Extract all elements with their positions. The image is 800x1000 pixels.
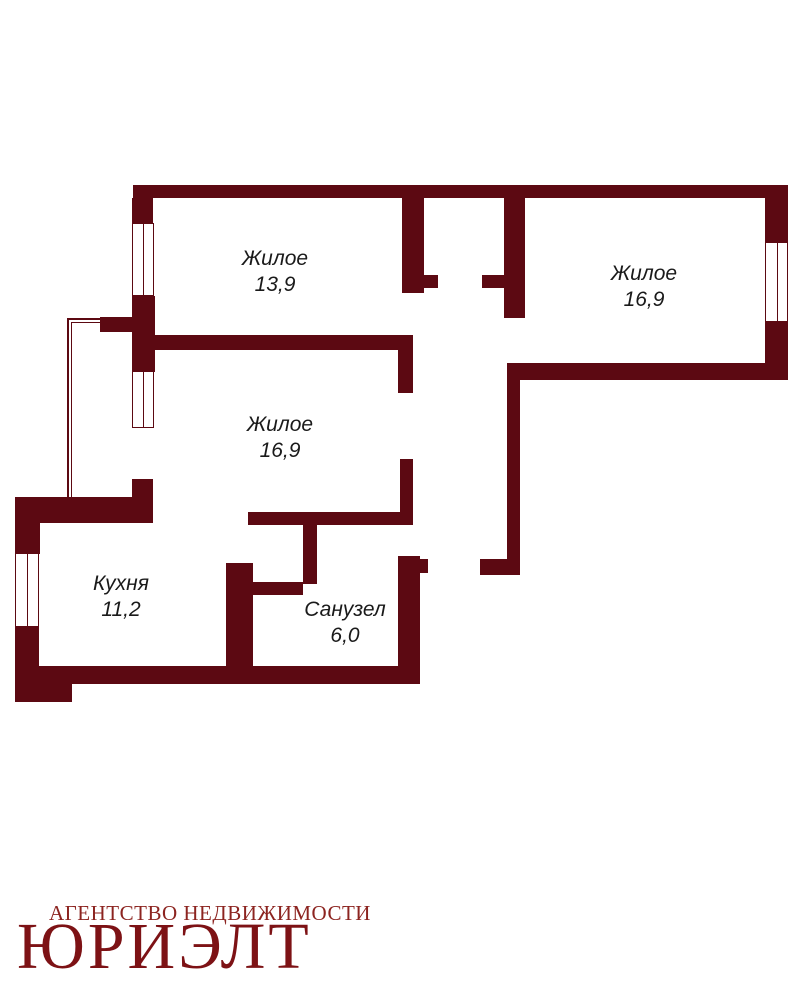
wall-segment [765, 322, 788, 377]
wall-segment [507, 363, 788, 380]
room-name: Жилое [190, 412, 370, 438]
room-label-kitchen: Кухня 11,2 [41, 571, 201, 623]
wall-segment [132, 198, 153, 224]
wall-segment [100, 317, 133, 332]
window-mullion [143, 372, 144, 427]
wall-segment [133, 185, 788, 198]
wall-segment [248, 512, 402, 525]
wall-segment [480, 559, 520, 575]
wall-segment [507, 380, 520, 575]
wall-segment [15, 497, 133, 523]
window-symbol [132, 223, 154, 296]
wall-segment [398, 350, 413, 393]
wall-segment [132, 479, 153, 523]
wall-segment [15, 626, 39, 672]
balcony-outline-inner [71, 322, 100, 498]
room-name: Санузел [263, 597, 427, 623]
room-label-living-1: Жилое 13,9 [185, 246, 365, 298]
wall-segment [765, 198, 788, 242]
wall-segment [226, 563, 253, 666]
wall-segment [252, 582, 303, 595]
window-mullion [27, 554, 28, 626]
wall-segment [303, 525, 317, 584]
wall-segment [37, 666, 420, 684]
window-symbol [132, 371, 154, 428]
room-name: Жилое [554, 261, 734, 287]
wall-segment [402, 198, 424, 293]
room-area: 11,2 [41, 597, 201, 623]
room-name: Жилое [185, 246, 365, 272]
window-symbol [765, 242, 788, 322]
wall-segment [504, 198, 525, 318]
wall-segment [15, 523, 40, 554]
wall-segment [482, 275, 504, 288]
window-mullion [143, 224, 144, 295]
floorplan-canvas: Жилое 13,9 Жилое 16,9 Жилое 16,9 Кухня 1… [0, 0, 800, 1000]
wall-segment [153, 335, 413, 350]
room-label-living-2: Жилое 16,9 [554, 261, 734, 313]
room-area: 16,9 [190, 438, 370, 464]
room-name: Кухня [41, 571, 201, 597]
wall-segment [400, 459, 413, 525]
wall-segment [420, 559, 428, 573]
wall-segment [132, 296, 155, 372]
room-label-bathroom: Санузел 6,0 [263, 597, 427, 649]
agency-logo-text: ЮРИЭЛТ [17, 914, 312, 980]
room-label-living-3: Жилое 16,9 [190, 412, 370, 464]
window-symbol [15, 553, 39, 627]
wall-segment [424, 275, 438, 288]
room-area: 6,0 [263, 623, 427, 649]
window-mullion [777, 243, 778, 321]
room-area: 13,9 [185, 272, 365, 298]
room-area: 16,9 [554, 287, 734, 313]
